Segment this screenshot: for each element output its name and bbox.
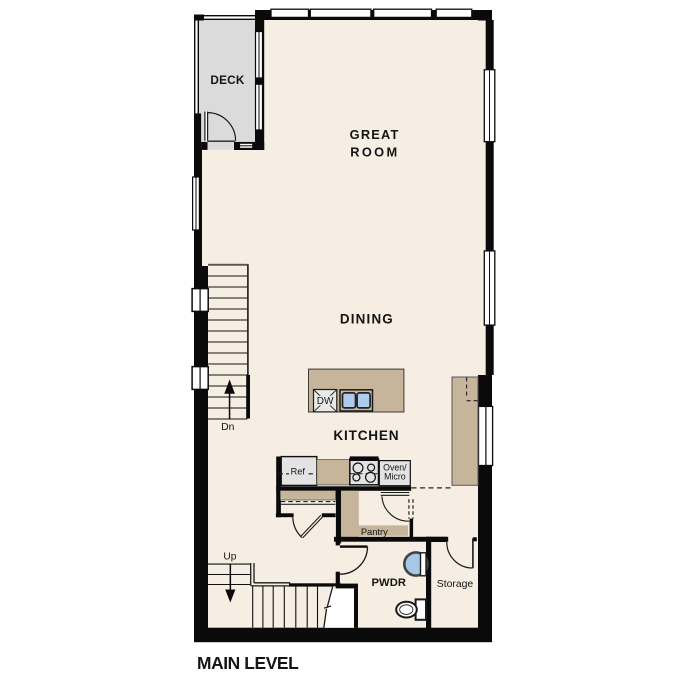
svg-text:KITCHEN: KITCHEN (333, 428, 399, 443)
svg-text:GREAT: GREAT (350, 127, 400, 142)
svg-text:Micro: Micro (384, 471, 406, 481)
svg-text:ROOM: ROOM (350, 145, 399, 160)
svg-text:DW: DW (317, 396, 334, 407)
svg-text:Up: Up (223, 551, 236, 562)
svg-text:DECK: DECK (210, 73, 245, 87)
svg-text:DINING: DINING (340, 312, 394, 327)
svg-text:Ref: Ref (291, 466, 306, 476)
svg-text:MAIN LEVEL: MAIN LEVEL (197, 653, 299, 673)
svg-text:Pantry: Pantry (361, 527, 388, 537)
svg-text:PWDR: PWDR (372, 577, 407, 589)
svg-text:Dn: Dn (221, 422, 235, 433)
svg-text:Storage: Storage (437, 579, 474, 590)
